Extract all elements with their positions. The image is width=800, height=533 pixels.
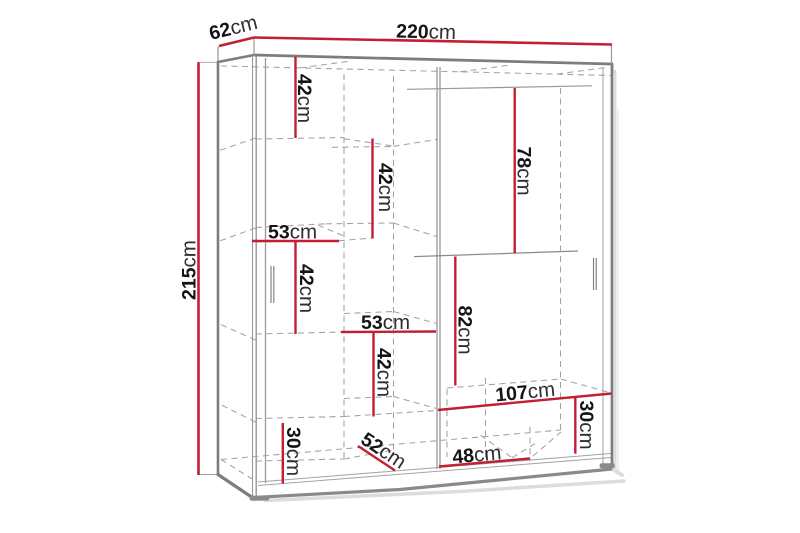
svg-text:42cm: 42cm	[374, 163, 397, 212]
svg-text:30cm: 30cm	[282, 427, 305, 476]
svg-text:82cm: 82cm	[454, 306, 477, 355]
svg-text:53cm: 53cm	[361, 311, 410, 334]
svg-text:220cm: 220cm	[396, 20, 456, 45]
svg-text:30cm: 30cm	[575, 401, 598, 450]
svg-text:42cm: 42cm	[295, 264, 318, 313]
svg-text:42cm: 42cm	[293, 74, 316, 123]
svg-text:78cm: 78cm	[513, 147, 536, 196]
svg-text:42cm: 42cm	[373, 348, 396, 397]
svg-text:215cm: 215cm	[178, 240, 201, 300]
svg-text:53cm: 53cm	[268, 221, 317, 244]
svg-text:48cm: 48cm	[451, 441, 502, 468]
